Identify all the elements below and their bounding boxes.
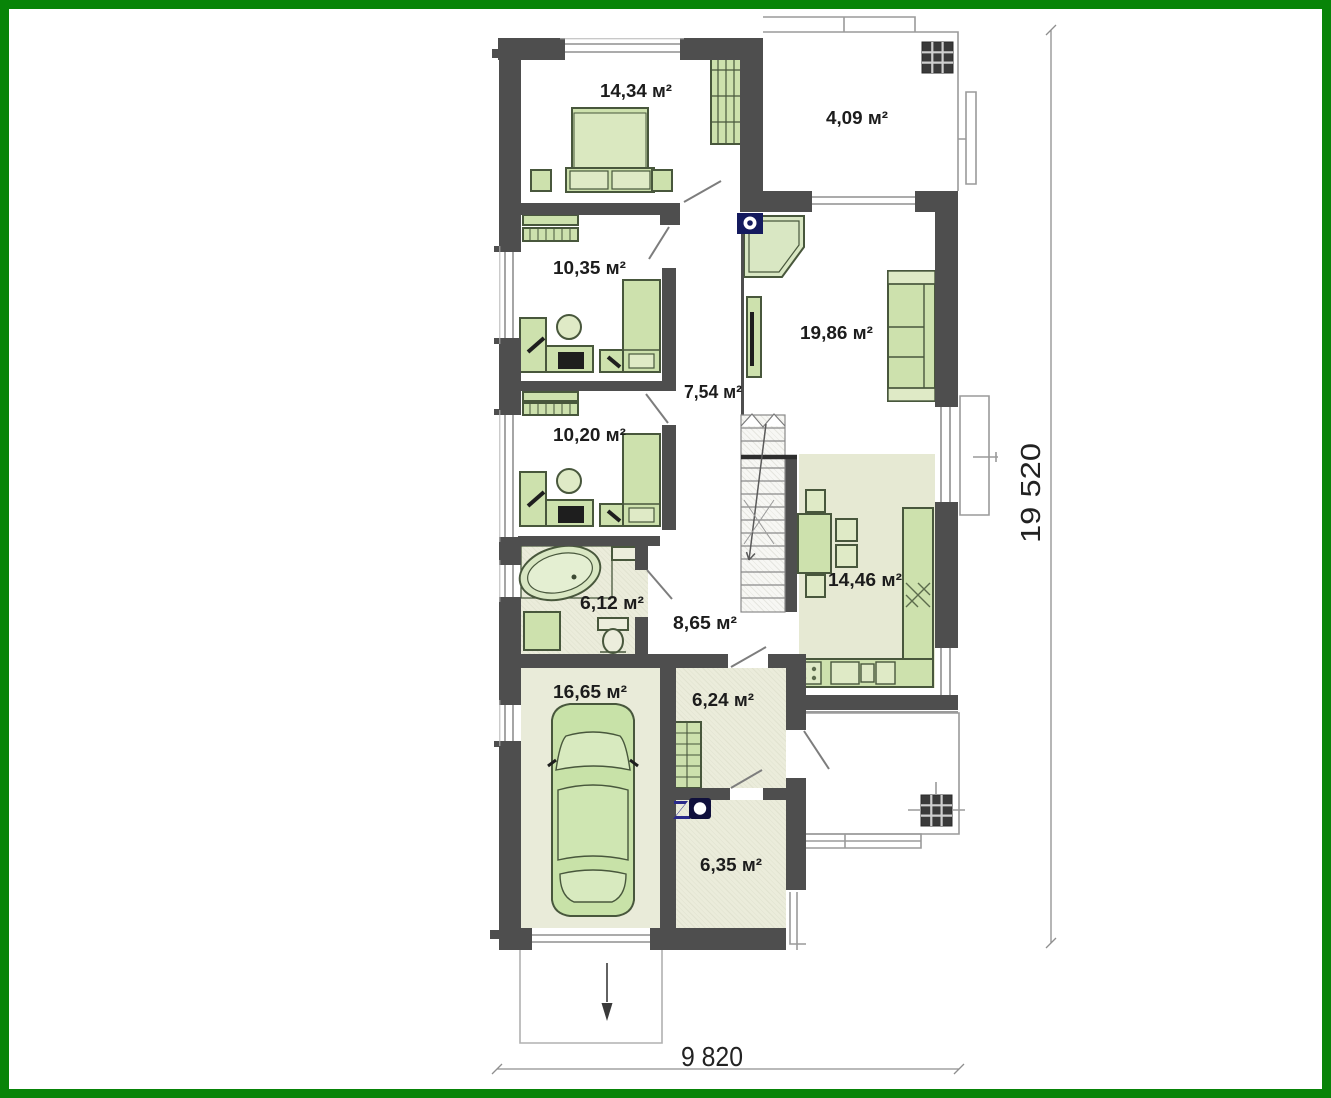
svg-text:14,46 м²: 14,46 м² <box>828 570 902 590</box>
svg-text:4,09 м²: 4,09 м² <box>826 108 888 128</box>
svg-text:8,65 м²: 8,65 м² <box>673 613 737 633</box>
svg-text:6,24 м²: 6,24 м² <box>692 690 754 710</box>
svg-text:9 820: 9 820 <box>681 1041 743 1072</box>
svg-text:19 520: 19 520 <box>1015 443 1046 543</box>
svg-text:6,12 м²: 6,12 м² <box>580 593 644 613</box>
svg-text:16,65 м²: 16,65 м² <box>553 682 627 702</box>
svg-text:7,54 м²: 7,54 м² <box>684 382 742 402</box>
svg-text:10,20 м²: 10,20 м² <box>553 425 626 445</box>
svg-text:19,86 м²: 19,86 м² <box>800 323 873 343</box>
svg-text:6,35 м²: 6,35 м² <box>700 855 762 875</box>
svg-text:10,35 м²: 10,35 м² <box>553 258 626 278</box>
svg-text:14,34 м²: 14,34 м² <box>600 81 672 101</box>
